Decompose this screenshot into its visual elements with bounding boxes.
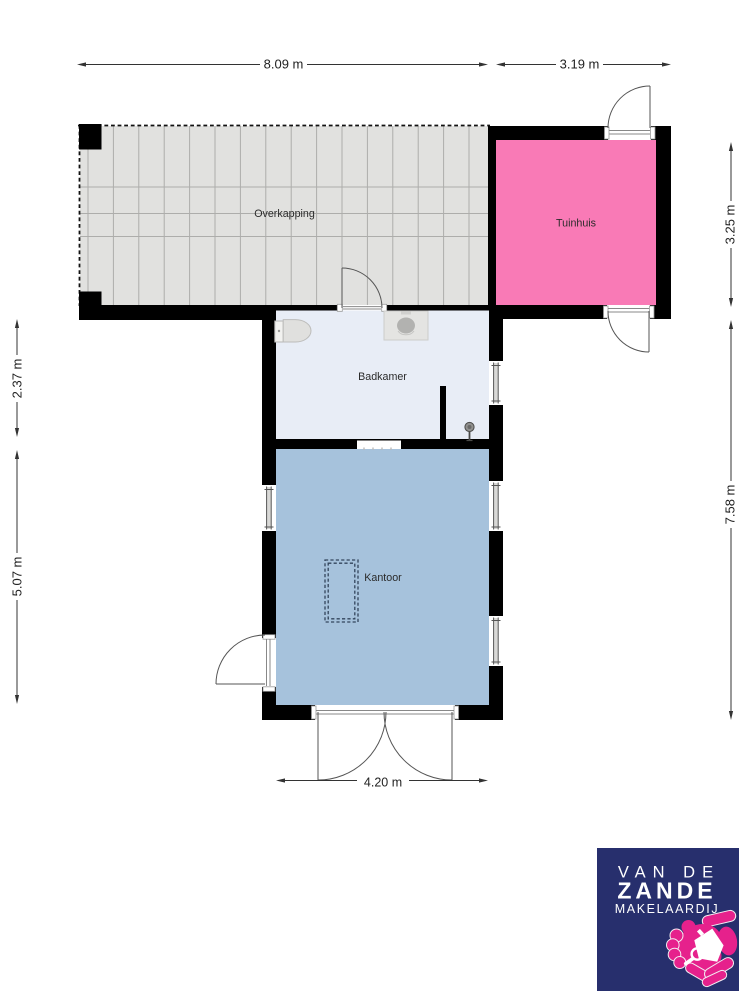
svg-text:Overkapping: Overkapping [254, 208, 315, 220]
svg-text:Kantoor: Kantoor [364, 572, 402, 584]
svg-text:MAKELAARDIJ: MAKELAARDIJ [615, 902, 719, 916]
svg-text:3.19 m: 3.19 m [560, 57, 600, 72]
svg-text:4.20 m: 4.20 m [364, 776, 402, 790]
svg-text:3.25 m: 3.25 m [723, 205, 738, 245]
svg-text:8.09 m: 8.09 m [264, 57, 304, 72]
svg-text:2.37 m: 2.37 m [10, 359, 25, 399]
svg-text:ZANDE: ZANDE [617, 878, 716, 904]
svg-text:7.58 m: 7.58 m [723, 485, 738, 525]
svg-text:5.07 m: 5.07 m [10, 557, 25, 597]
svg-text:Badkamer: Badkamer [358, 371, 407, 383]
svg-text:Tuinhuis: Tuinhuis [556, 218, 596, 230]
